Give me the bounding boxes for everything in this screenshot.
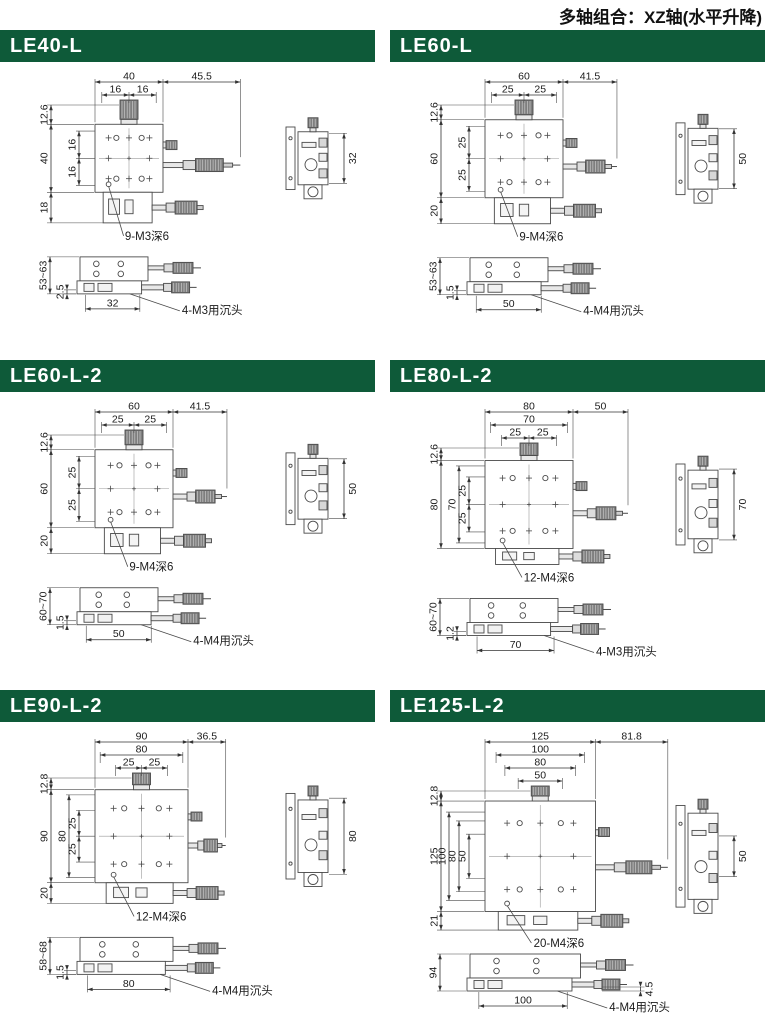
callout-label: 4-M4用沉头 [583, 305, 644, 318]
dim-label: 45.5 [191, 71, 212, 83]
callout-label: 20-M4深6 [534, 936, 585, 950]
dim-label: 25 [67, 843, 79, 855]
dim-label: 80 [347, 830, 359, 842]
dim-label: 21 [429, 915, 441, 927]
product-panel: LE60-L 6041.5252512.6602525209-M4深65053~… [390, 30, 765, 360]
panel-title-bar: LE125-L-2 [390, 690, 765, 722]
panel-title-bar: LE60-L-2 [0, 360, 375, 392]
dim-label: 81.8 [621, 731, 642, 743]
dim-label: 25 [509, 427, 521, 439]
panel-title-bar: LE60-L [390, 30, 765, 62]
dim-label: 25 [457, 136, 469, 148]
panels-grid: LE40-L 4045.5161612.6401616189-M3深63253~… [0, 30, 765, 1020]
technical-drawing: 12581.8100805012.812510080502120-M4深6509… [390, 724, 765, 1020]
callout-label: 4-M4用沉头 [193, 635, 254, 648]
dim-label: 50 [347, 483, 359, 495]
dim-label: 18 [39, 202, 51, 214]
panel-title: LE60-L-2 [10, 365, 102, 387]
dim-label: 41.5 [580, 71, 601, 83]
catalog-page: 多轴组合：XZ轴(水平升降) LE40-L 4045.5161612.64016… [0, 0, 765, 1030]
dim-label: 25 [502, 84, 514, 96]
dim-label: 25 [534, 84, 546, 96]
technical-drawing: 9036.580252512.8908025252012-M4深68058~68… [0, 724, 375, 1020]
callout-label: 9-M4深6 [519, 230, 563, 244]
dim-label: 25 [67, 499, 79, 511]
dim-label: 50 [113, 628, 125, 640]
dim-label: 25 [537, 427, 549, 439]
dim-label: 4.5 [644, 982, 656, 997]
product-panel: LE40-L 4045.5161612.6401616189-M3深63253~… [0, 30, 375, 360]
dim-label: 50 [595, 401, 607, 413]
dim-label: 50 [503, 298, 515, 310]
dim-label: 1.5 [445, 285, 457, 300]
dim-label: 80 [57, 830, 69, 842]
dim-label: 41.5 [190, 401, 211, 413]
callout-label: 4-M3用沉头 [596, 645, 657, 658]
technical-drawing: 6041.5252512.6602525209-M4深65053~631.550… [390, 64, 765, 360]
dim-label: 100 [531, 744, 549, 756]
dim-label: 32 [347, 152, 359, 164]
callout-label: 4-M4用沉头 [609, 1001, 670, 1014]
dim-label: 25 [123, 757, 135, 769]
dim-label: 60 [128, 401, 140, 413]
dim-label: 70 [523, 414, 535, 426]
dim-label: 20 [39, 887, 51, 899]
dim-label: 70 [737, 498, 749, 510]
dim-label: 80 [136, 744, 148, 756]
dim-label: 60~70 [428, 602, 440, 632]
dim-label: 50 [457, 850, 469, 862]
dim-label: 60~70 [38, 591, 50, 621]
dim-label: 12.6 [429, 444, 441, 465]
product-panel: LE90-L-2 9036.580252512.8908025252012-M4… [0, 690, 375, 1020]
dim-label: 2.5 [55, 284, 67, 299]
panel-title: LE125-L-2 [400, 695, 505, 717]
panel-title: LE90-L-2 [10, 695, 102, 717]
dim-label: 25 [457, 485, 469, 497]
callout-label: 12-M4深6 [136, 909, 187, 923]
dim-label: 40 [39, 152, 51, 164]
callout-label: 9-M3深6 [125, 229, 169, 243]
callout-label: 4-M4用沉头 [212, 984, 273, 997]
dim-label: 25 [144, 414, 156, 426]
panel-title-bar: LE40-L [0, 30, 375, 62]
callout-label: 12-M4深6 [524, 570, 575, 584]
dim-label: 20 [429, 205, 441, 217]
dim-label: 32 [107, 297, 119, 309]
dim-label: 16 [137, 84, 149, 96]
dim-label: 90 [136, 731, 148, 743]
dim-label: 16 [67, 139, 79, 151]
dim-label: 50 [737, 153, 749, 165]
panel-title: LE80-L-2 [400, 365, 492, 387]
product-panel: LE80-L-2 805070252512.68070252512-M4深670… [390, 360, 765, 690]
dim-label: 25 [149, 757, 161, 769]
dim-label: 25 [67, 466, 79, 478]
dim-label: 90 [39, 830, 51, 842]
dim-label: 100 [514, 995, 532, 1007]
dim-label: 1.5 [55, 615, 67, 630]
technical-drawing: 6041.5252512.6602525209-M4深65060~701.550… [0, 394, 375, 690]
dim-label: 12.8 [39, 773, 51, 794]
callout-label: 9-M4深6 [129, 560, 173, 574]
dim-label: 12.8 [429, 786, 441, 807]
dim-label: 80 [534, 757, 546, 769]
dim-label: 16 [67, 166, 79, 178]
dim-label: 25 [67, 817, 79, 829]
dim-label: 60 [429, 153, 441, 165]
dim-label: 60 [518, 71, 530, 83]
dim-label: 25 [112, 414, 124, 426]
dim-label: 12.6 [39, 104, 51, 125]
dim-label: 53~63 [428, 261, 440, 291]
callout-label: 4-M3用沉头 [182, 304, 243, 317]
dim-label: 80 [429, 498, 441, 510]
dim-label: 50 [737, 850, 749, 862]
dim-label: 1.2 [445, 626, 457, 641]
dim-label: 20 [39, 535, 51, 547]
dim-label: 60 [39, 483, 51, 495]
panel-title: LE60-L [400, 35, 473, 57]
panel-title: LE40-L [10, 35, 83, 57]
dim-label: 16 [110, 84, 122, 96]
dim-label: 1.5 [55, 965, 67, 980]
page-header-text: 多轴组合：XZ轴(水平升降) [559, 3, 762, 28]
page-header: 多轴组合：XZ轴(水平升降) [0, 0, 765, 30]
dim-label: 94 [428, 967, 440, 979]
dim-label: 80 [523, 401, 535, 413]
dim-label: 25 [457, 169, 469, 181]
technical-drawing: 805070252512.68070252512-M4深67060~701.27… [390, 394, 765, 690]
dim-label: 58~68 [38, 941, 50, 971]
dim-label: 12.6 [429, 102, 441, 123]
dim-label: 70 [510, 639, 522, 651]
panel-title-bar: LE80-L-2 [390, 360, 765, 392]
dim-label: 53~63 [38, 260, 50, 290]
dim-label: 70 [447, 498, 459, 510]
dim-label: 40 [123, 71, 135, 83]
dim-label: 125 [531, 731, 549, 743]
dim-label: 25 [457, 512, 469, 524]
dim-label: 12.6 [39, 432, 51, 453]
dim-label: 36.5 [197, 731, 218, 743]
product-panel: LE60-L-2 6041.5252512.6602525209-M4深6506… [0, 360, 375, 690]
dim-label: 80 [123, 978, 135, 990]
technical-drawing: 4045.5161612.6401616189-M3深63253~632.532… [0, 64, 375, 360]
panel-title-bar: LE90-L-2 [0, 690, 375, 722]
product-panel: LE125-L-2 12581.8100805012.8125100805021… [390, 690, 765, 1020]
dim-label: 50 [534, 770, 546, 782]
